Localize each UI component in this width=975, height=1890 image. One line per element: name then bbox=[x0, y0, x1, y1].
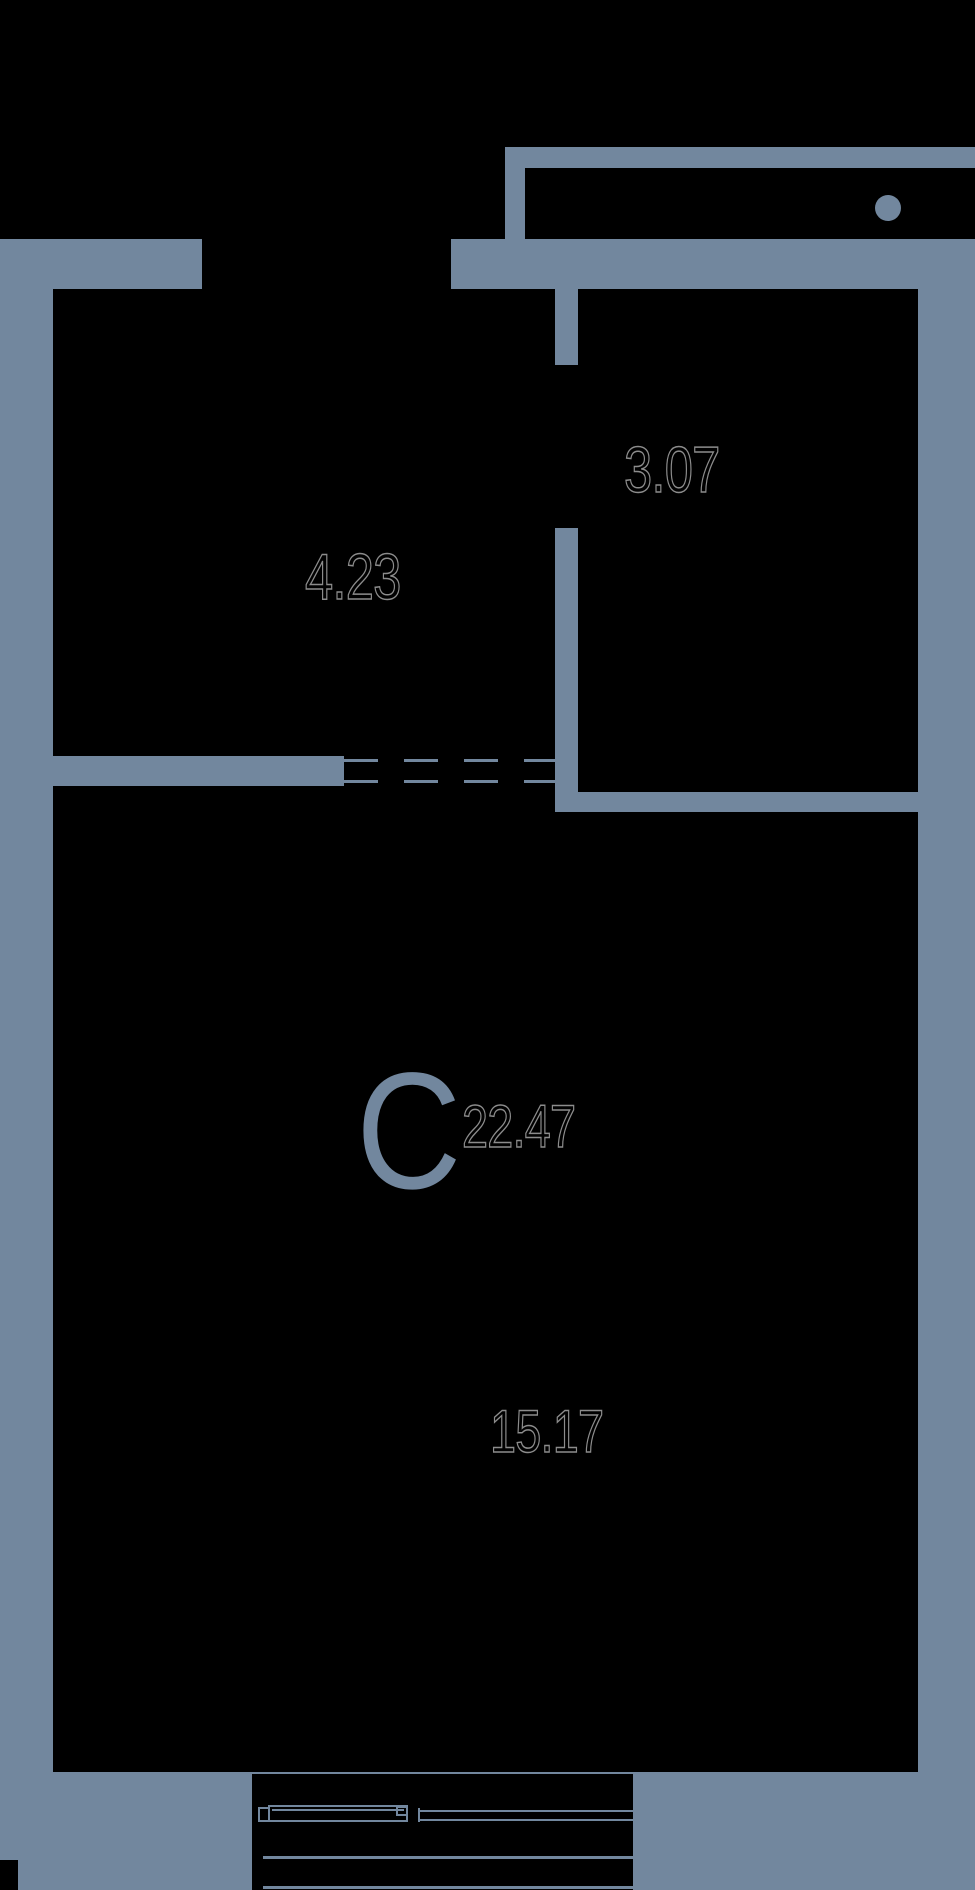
bathroom-bottom-wall bbox=[578, 792, 921, 812]
bottom-left-corner-notch bbox=[0, 1860, 18, 1890]
room-divider-wall-upper bbox=[555, 289, 578, 365]
window-sash-2-bottom-line bbox=[418, 1819, 637, 1821]
window-sash-1-glass-line bbox=[272, 1809, 404, 1811]
left-outer-wall bbox=[0, 239, 53, 1772]
window-sash-1-frame bbox=[268, 1805, 408, 1822]
kitchen-zone-area-label: 15.17 bbox=[490, 1402, 603, 1462]
window-outer-sill-line-2 bbox=[263, 1886, 633, 1889]
studio-area-label: 22.47 bbox=[462, 1097, 575, 1157]
hall-studio-wall bbox=[53, 756, 344, 786]
floor-plan: 4.23 3.07 C 22.47 15.17 bbox=[0, 0, 975, 1890]
right-outer-wall bbox=[918, 239, 975, 1772]
hall-area-label: 4.23 bbox=[305, 544, 401, 609]
window-sash-2-top-line bbox=[418, 1810, 637, 1812]
top-wall-right-segment bbox=[451, 239, 975, 289]
window-inner-face-line bbox=[250, 1772, 635, 1774]
bottom-wall-left-block bbox=[0, 1772, 252, 1890]
dashed-opening-bottom-line bbox=[344, 780, 555, 783]
room-divider-wall-lower bbox=[555, 528, 578, 812]
window-sash-1-end-cap bbox=[396, 1806, 408, 1816]
bottom-wall-right-block bbox=[633, 1772, 975, 1890]
balcony-left-wall bbox=[505, 147, 525, 239]
bathroom-area-label: 3.07 bbox=[624, 437, 720, 502]
window-sash-2-right-tick bbox=[635, 1808, 637, 1822]
window-outer-sill-line-1 bbox=[263, 1856, 633, 1859]
studio-letter-label: C bbox=[356, 1049, 462, 1215]
window-sash-2-left-tick bbox=[418, 1808, 420, 1822]
balcony-top-wall bbox=[505, 147, 975, 168]
dashed-opening-top-line bbox=[344, 759, 555, 762]
column-dot-marker bbox=[875, 195, 901, 221]
